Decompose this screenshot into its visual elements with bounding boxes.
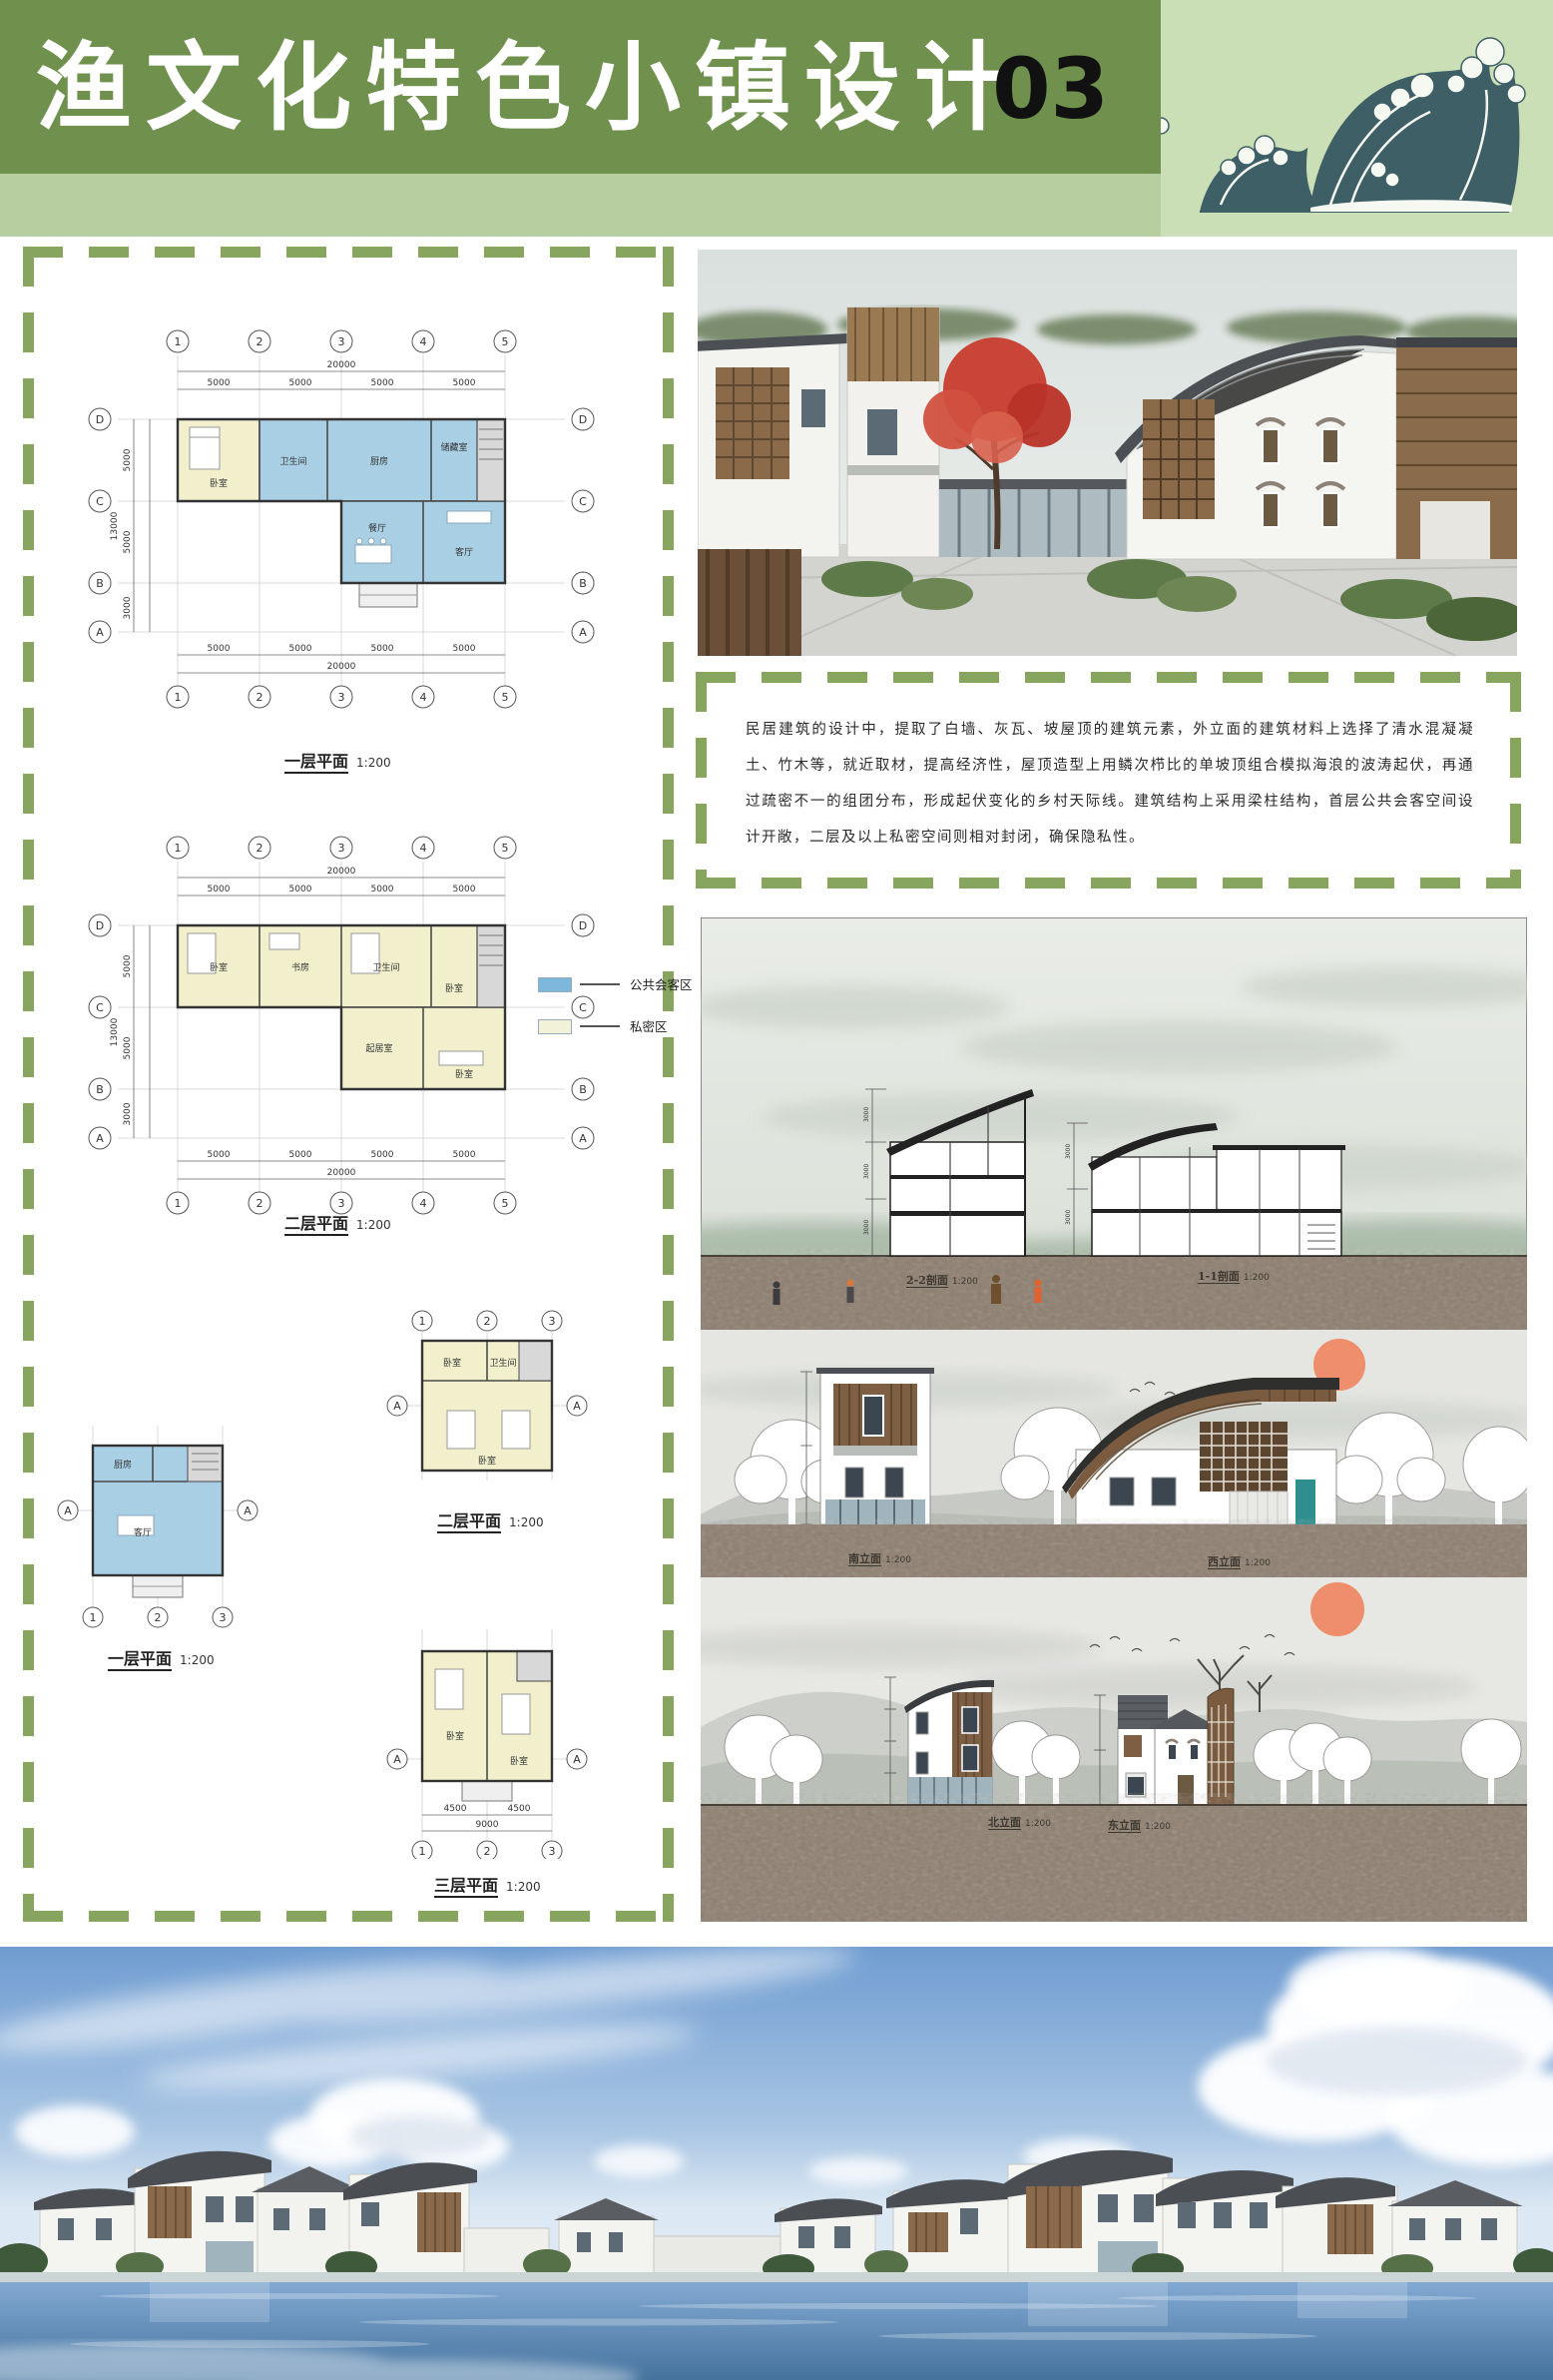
svg-text:2: 2 [155,1611,162,1624]
ground-band [701,1256,1527,1330]
svg-text:5000: 5000 [123,448,133,471]
svg-text:5000: 5000 [289,885,312,894]
svg-text:3000: 3000 [123,596,133,619]
svg-text:2: 2 [484,1845,491,1858]
svg-text:A: A [573,1753,581,1766]
svg-text:C: C [96,495,104,508]
svg-text:3: 3 [338,691,345,704]
poster-title: 渔文化特色小镇设计 [36,18,994,158]
dimension-lines-side [134,925,150,1138]
svg-text:卫生间: 卫生间 [489,1357,516,1369]
svg-text:卧室: 卧室 [510,1755,528,1767]
svg-text:5000: 5000 [123,1036,133,1059]
svg-text:5000: 5000 [123,530,133,553]
plan-small-second-floor: 1 2 3 卧室 卫生间 卧室 A [367,1306,592,1505]
svg-text:3: 3 [549,1315,556,1328]
svg-text:3000: 3000 [863,1164,870,1179]
axis-labels-bottom: 1 2 3 [412,1841,562,1859]
svg-text:B: B [96,577,104,590]
plan-rooms [93,1446,223,1597]
svg-text:5000: 5000 [123,954,133,977]
svg-text:2: 2 [257,842,263,855]
svg-text:卫生间: 卫生间 [279,455,306,467]
teal-door [1295,1480,1315,1524]
svg-text:C: C [579,1001,587,1014]
svg-text:1: 1 [175,335,182,348]
section-caption-1-1: 1-1剖面1:200 [1198,1265,1270,1284]
axis-labels-bottom: 1 2 3 [83,1607,233,1627]
svg-text:5: 5 [502,842,509,855]
section-drawing: 3000 3000 3000 [701,917,1527,1330]
svg-text:20000: 20000 [327,662,356,672]
svg-text:4: 4 [420,1197,427,1210]
svg-text:1: 1 [419,1845,426,1858]
svg-text:C: C [579,495,587,508]
svg-text:3: 3 [338,335,345,348]
svg-text:餐厅: 餐厅 [368,522,386,534]
far-right-wood-building [1396,337,1517,559]
svg-text:A: A [579,626,587,639]
svg-text:A: A [393,1753,401,1766]
svg-text:5000: 5000 [453,885,476,894]
plan-small-first-floor: 厨房 客厅 A A 1 2 3 [38,1396,262,1635]
axis-labels-top: 1 2 3 4 5 [167,837,516,859]
svg-text:5000: 5000 [371,885,394,894]
elevation-caption-west: 西立面1:200 [1208,1550,1271,1569]
section-caption-2-2: 2-2剖面1:200 [906,1269,978,1288]
wave-illustration-block [1161,0,1553,237]
axis-labels-top: 1 2 3 [412,1311,562,1331]
svg-text:5000: 5000 [371,1150,394,1160]
svg-text:13000: 13000 [110,511,120,540]
svg-text:5000: 5000 [289,644,312,654]
svg-text:5000: 5000 [371,644,394,654]
plan-caption-small-second: 二层平面1:200 [437,1507,544,1531]
svg-text:3000: 3000 [1065,1210,1072,1225]
plan-rooms [178,925,505,1089]
svg-text:5000: 5000 [289,378,312,388]
svg-text:4500: 4500 [444,1804,467,1814]
elevation-drawings: 3000 3000 3000 [701,917,1527,1922]
elevation-caption-east: 东立面1:200 [1108,1814,1171,1833]
elevation-caption-south: 南立面1:200 [848,1547,911,1566]
svg-text:卧室: 卧室 [445,982,463,994]
courtyard-rendering [698,250,1517,656]
svg-text:D: D [96,919,104,932]
svg-text:起居室: 起居室 [365,1042,392,1054]
glass-wing [939,479,1135,557]
wood-tower [847,307,939,557]
left-building [698,333,847,557]
header-light-strip [0,174,1166,237]
svg-text:2: 2 [257,335,263,348]
svg-text:A: A [96,1132,104,1145]
svg-text:9000: 9000 [476,1820,499,1830]
svg-text:2: 2 [257,1197,263,1210]
plan-caption-second-floor: 二层平面1:200 [284,1210,391,1234]
svg-text:B: B [96,1083,104,1096]
svg-text:2: 2 [257,691,263,704]
dimension-lines-side [134,419,150,632]
svg-text:13000: 13000 [110,1017,120,1046]
svg-text:20000: 20000 [327,360,356,370]
plan-rooms [422,1651,552,1801]
svg-text:5000: 5000 [453,378,476,388]
svg-text:C: C [96,1001,104,1014]
svg-text:5000: 5000 [208,644,231,654]
description-box: 民居建筑的设计中，提取了白墙、灰瓦、坡屋顶的建筑元素，外立面的建筑材料上选择了清… [696,672,1521,889]
svg-text:20000: 20000 [327,1168,356,1178]
wave-icon [1161,0,1553,237]
svg-text:4: 4 [420,335,427,348]
svg-text:5000: 5000 [208,378,231,388]
svg-text:3000: 3000 [123,1102,133,1125]
svg-text:卧室: 卧室 [446,1730,464,1742]
svg-text:5000: 5000 [453,1150,476,1160]
svg-text:1: 1 [90,1611,97,1624]
svg-text:卧室: 卧室 [210,477,228,489]
quay-edge [0,2272,1553,2282]
svg-text:厨房: 厨房 [114,1459,132,1471]
svg-text:A: A [393,1400,401,1413]
svg-text:3: 3 [549,1845,556,1858]
svg-text:3000: 3000 [1065,1144,1072,1159]
svg-text:5: 5 [502,1197,509,1210]
svg-text:1: 1 [419,1315,426,1328]
svg-text:3: 3 [338,842,345,855]
svg-text:3: 3 [338,1197,345,1210]
svg-text:A: A [573,1400,581,1413]
svg-text:1: 1 [175,1197,182,1210]
svg-text:5000: 5000 [289,1150,312,1160]
svg-text:2: 2 [484,1315,491,1328]
svg-text:B: B [579,1083,587,1096]
svg-text:A: A [579,1132,587,1145]
design-description: 民居建筑的设计中，提取了白墙、灰瓦、坡屋顶的建筑元素，外立面的建筑材料上选择了清… [746,712,1474,856]
svg-text:4: 4 [420,842,427,855]
svg-text:卧室: 卧室 [210,961,228,973]
svg-text:3000: 3000 [863,1220,870,1235]
south-west-elevation [701,1330,1527,1577]
plan-rooms [422,1341,552,1471]
svg-text:4500: 4500 [508,1804,531,1814]
svg-text:1: 1 [175,842,182,855]
svg-text:储藏室: 储藏室 [440,441,467,453]
svg-text:B: B [579,577,587,590]
plan-caption-first-floor: 一层平面1:200 [284,748,391,772]
elevation-building-left [800,1368,934,1524]
svg-text:5000: 5000 [208,1150,231,1160]
waterfront-rendering [0,1947,1553,2380]
svg-text:1: 1 [175,691,182,704]
svg-text:A: A [96,626,104,639]
north-east-elevation [701,1577,1527,1922]
svg-text:卧室: 卧室 [478,1455,496,1467]
svg-text:D: D [96,413,104,426]
svg-text:D: D [579,919,587,932]
axis-labels-top: 1 2 3 4 5 [167,330,516,352]
svg-text:A: A [244,1504,252,1517]
svg-text:D: D [579,413,587,426]
header-band: 渔文化特色小镇设计 03 [0,0,1161,174]
pergola [698,549,801,656]
svg-text:A: A [64,1504,72,1517]
elevation-caption-north: 北立面1:200 [988,1811,1051,1830]
svg-text:5: 5 [502,335,509,348]
svg-text:3000: 3000 [863,1107,870,1122]
axis-labels-bottom: 1 2 3 4 5 [167,686,516,708]
plan-small-third-floor: 卧室 卧室 A A 4500 4500 9000 1 2 3 [367,1609,592,1859]
svg-text:5000: 5000 [208,885,231,894]
svg-text:20000: 20000 [327,867,356,877]
svg-text:书房: 书房 [291,961,309,973]
plan-first-floor: 1 2 3 4 5 20000 5000 5000 5000 5000 D C … [60,319,619,729]
svg-text:5000: 5000 [453,644,476,654]
svg-text:卧室: 卧室 [443,1357,461,1369]
svg-text:4: 4 [420,691,427,704]
svg-text:5000: 5000 [371,378,394,388]
plan-caption-small-third: 三层平面1:200 [434,1872,541,1896]
svg-text:客厅: 客厅 [134,1526,152,1538]
water [0,2282,1553,2380]
svg-text:客厅: 客厅 [455,546,473,558]
design-poster: 渔文化特色小镇设计 03 [0,0,1553,2380]
page-number: 03 [992,44,1109,134]
svg-text:卫生间: 卫生间 [372,961,399,973]
plan-second-floor: 1 2 3 4 5 20000 5000 5000 5000 5000 D C … [60,826,619,1235]
svg-text:厨房: 厨房 [370,455,388,467]
svg-text:卧室: 卧室 [455,1068,473,1080]
plan-caption-small-first: 一层平面1:200 [108,1645,215,1669]
floor-plans-panel: 1 2 3 4 5 20000 5000 5000 5000 5000 D C … [23,247,674,1922]
svg-text:3: 3 [220,1611,227,1624]
ground-band [701,1524,1527,1577]
svg-text:5: 5 [502,691,509,704]
